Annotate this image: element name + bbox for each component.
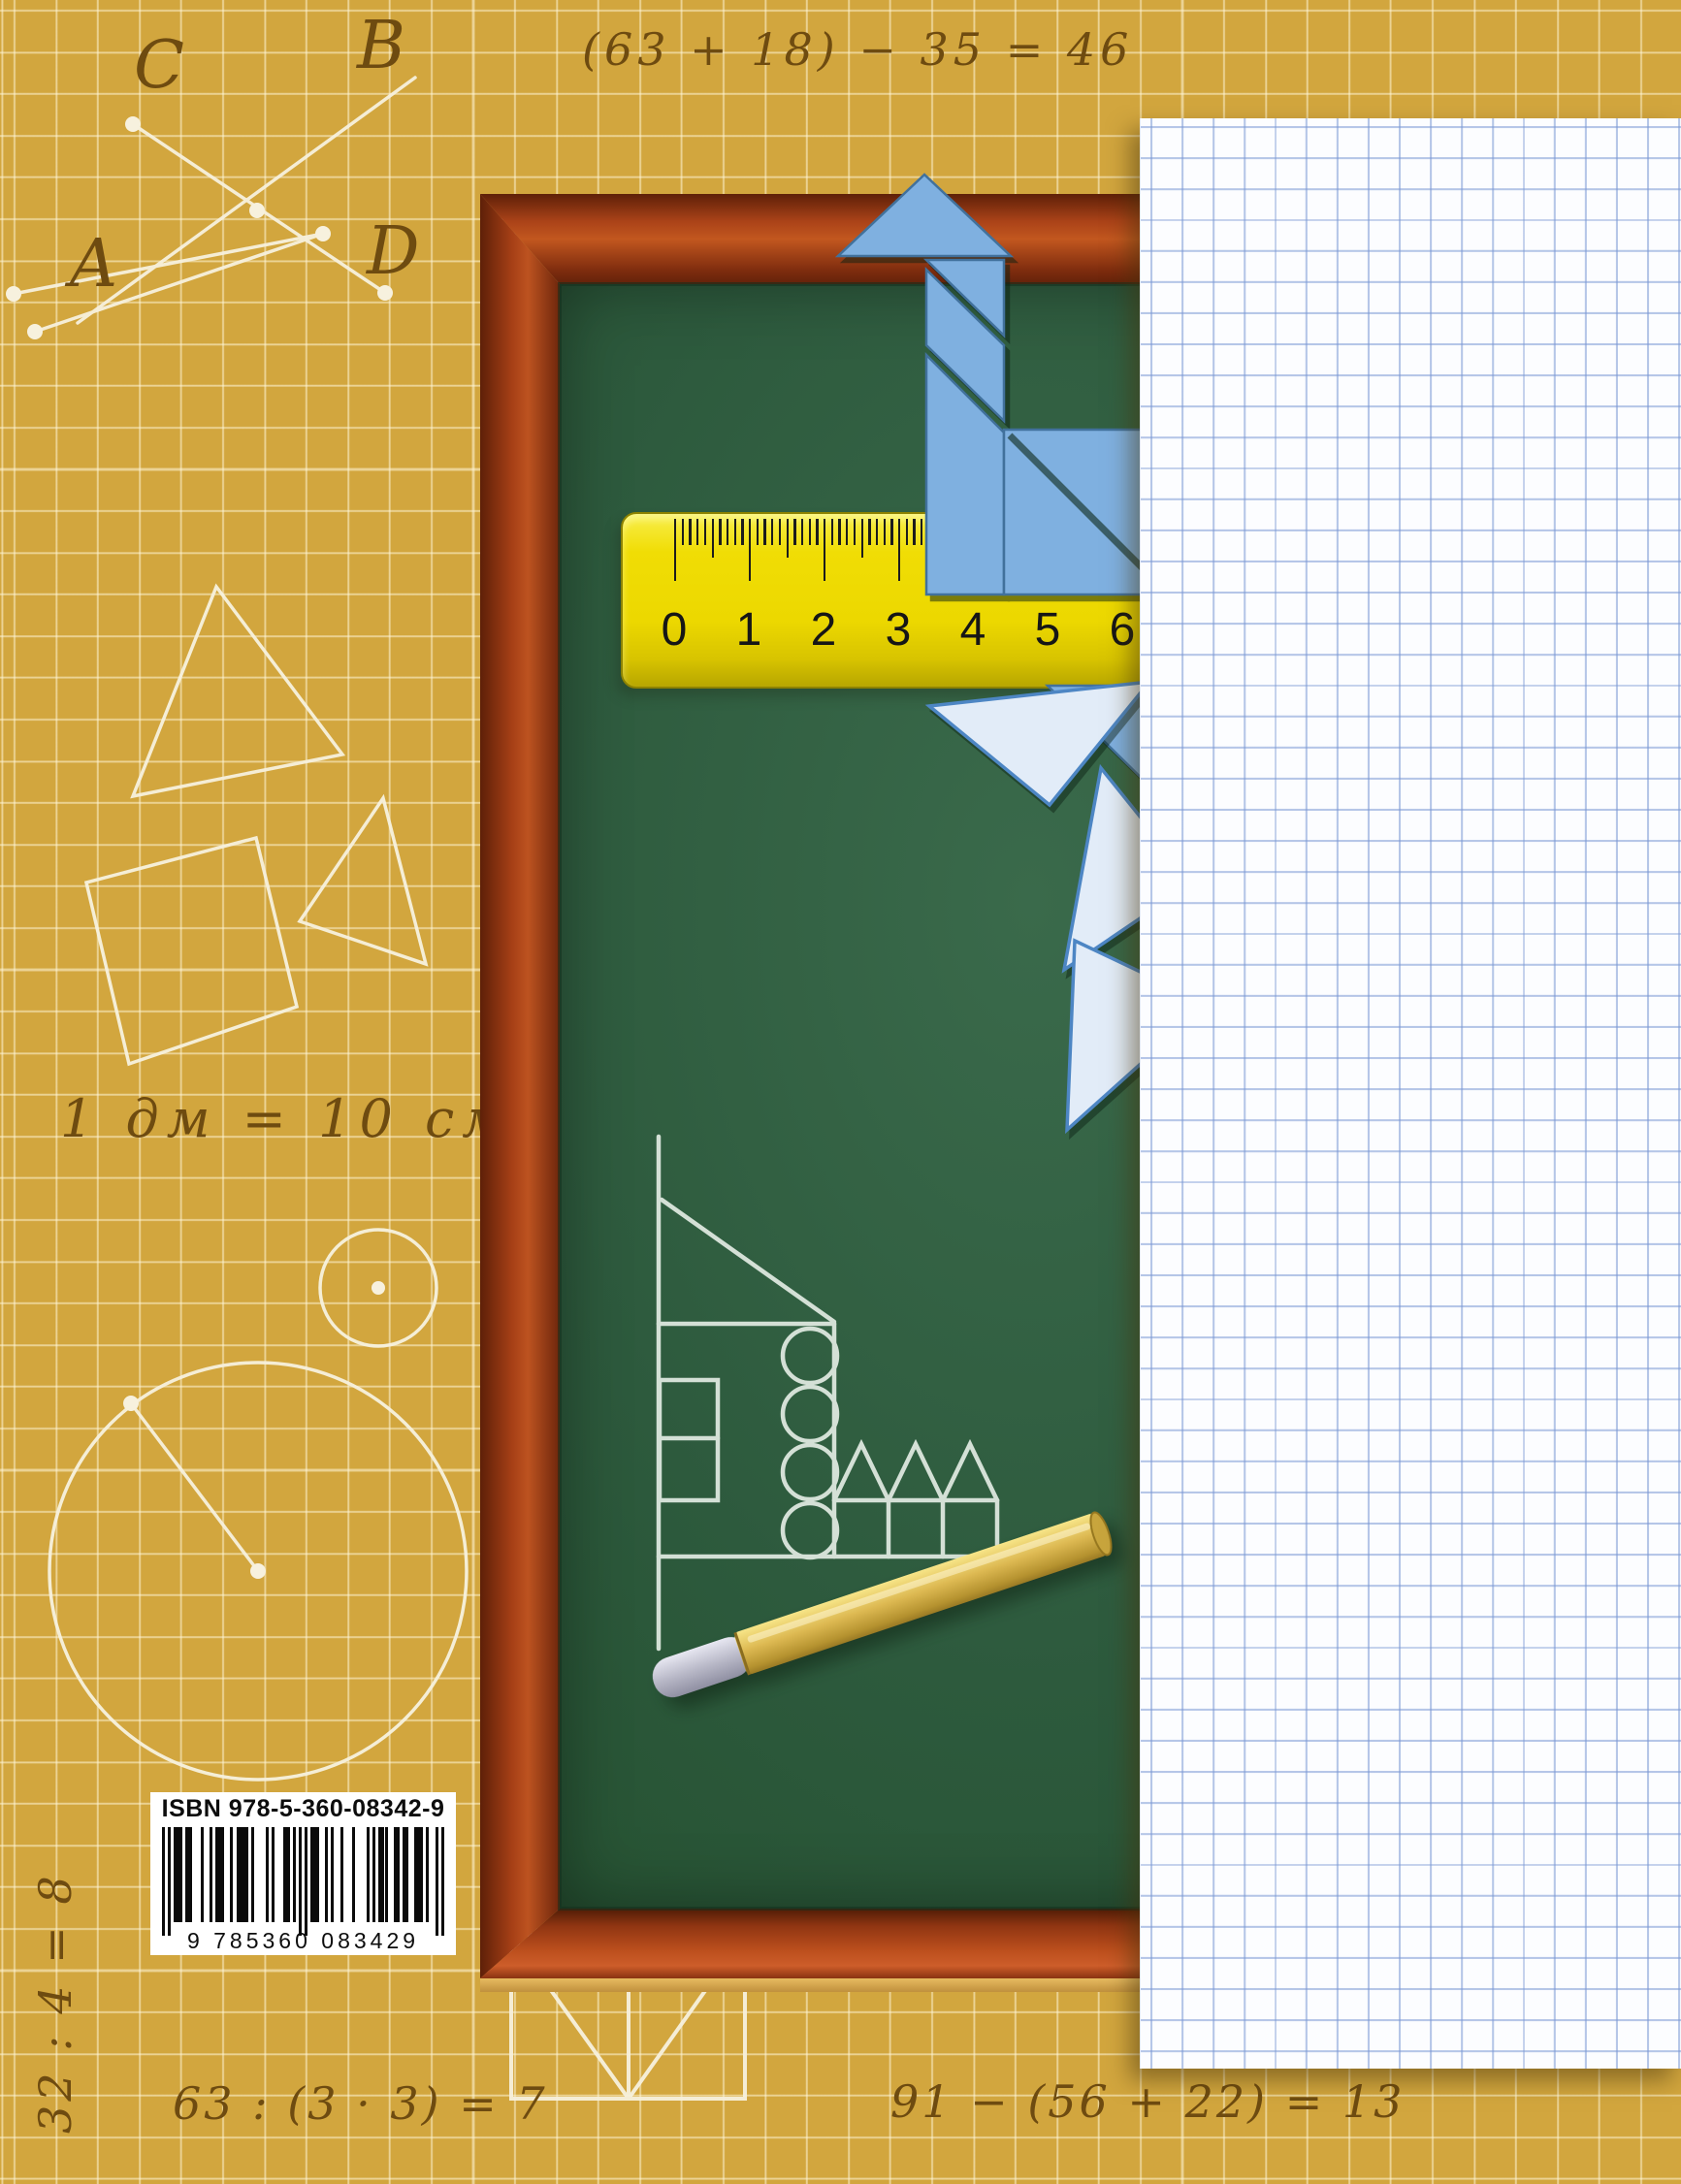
barcode-bar [293, 1827, 296, 1922]
barcode-bar [352, 1827, 355, 1922]
barcode-bar [266, 1827, 269, 1922]
barcode-bar [245, 1827, 248, 1922]
squared-paper-sheet [1140, 118, 1681, 2069]
barcode-bar [367, 1827, 370, 1922]
chalk-highlight [747, 1523, 1091, 1644]
barcode-bar [441, 1827, 444, 1936]
barcode-bar [179, 1827, 182, 1922]
barcode-bar [168, 1827, 171, 1936]
barcode-bar [426, 1827, 429, 1922]
isbn-text: ISBN 978-5-360-08342-9 [150, 1795, 456, 1823]
barcode-bar [251, 1827, 254, 1922]
barcode-bar [420, 1827, 423, 1922]
barcode-bar [210, 1827, 212, 1922]
barcode-bar [189, 1827, 192, 1922]
barcode-bar [325, 1827, 328, 1922]
barcode-box: ISBN 978-5-360-08342-9 9 785360 083429 [150, 1792, 456, 1955]
barcode-bar [436, 1827, 438, 1936]
barcode-bar [340, 1827, 343, 1922]
barcode-bar [230, 1827, 233, 1922]
barcode-bar [162, 1827, 165, 1936]
barcode-bar [305, 1827, 307, 1936]
barcode-bar [331, 1827, 334, 1922]
barcode-bar [372, 1827, 375, 1922]
barcode-bar [272, 1827, 275, 1922]
barcode-bar [287, 1827, 290, 1922]
book-back-cover: C B A D (63 + 18) − 35 = 46 1 дм = 10 см… [0, 0, 1681, 2184]
barcode-digits: 9 785360 083429 [150, 1928, 456, 1954]
barcode-bar [385, 1827, 388, 1922]
barcode-bar [405, 1827, 408, 1922]
barcode-bar [299, 1827, 302, 1936]
barcode-bar [397, 1827, 400, 1922]
barcode-bar [221, 1827, 224, 1922]
barcode-bar [316, 1827, 319, 1922]
barcode-bar [201, 1827, 204, 1922]
